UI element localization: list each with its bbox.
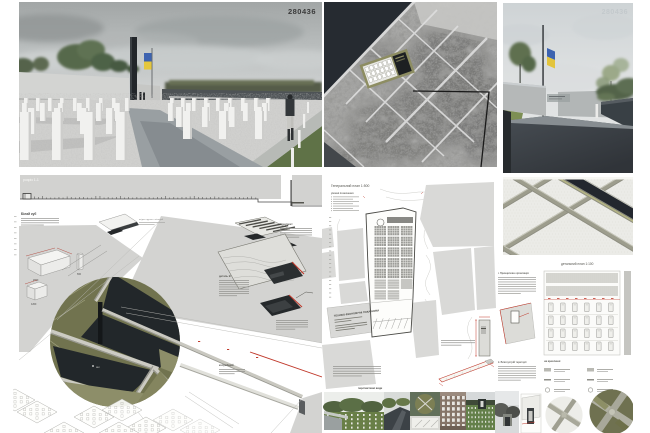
svg-text:деталь В: деталь В: [219, 274, 231, 278]
svg-text:1200: 1200: [31, 303, 37, 306]
svg-text:і. Принципова організація: і. Принципова організація: [498, 272, 529, 275]
svg-text:розріз 1-1: розріз 1-1: [23, 178, 39, 182]
svg-text:монумент: монумент: [280, 223, 293, 226]
svg-text:280436: 280436: [602, 9, 628, 16]
svg-text:280436: 280436: [288, 7, 316, 16]
svg-text:іі. Благоустрій території: іі. Благоустрій території: [498, 361, 527, 364]
svg-text:Білий куб: Білий куб: [21, 212, 36, 216]
svg-text:Генеральний план 1:500: Генеральний план 1:500: [331, 184, 369, 188]
svg-text:перспективні види: перспективні види: [358, 386, 383, 390]
svg-text:умовні позначення: умовні позначення: [331, 192, 354, 195]
svg-text:500: 500: [77, 273, 82, 276]
svg-text:колумбарій: колумбарій: [219, 363, 234, 367]
svg-text:на кресленні: на кресленні: [544, 359, 561, 363]
svg-text:вхідна группа з пілоном: вхідна группа з пілоном: [139, 218, 164, 221]
svg-text:детальний план 1:100: детальний план 1:100: [561, 262, 594, 266]
